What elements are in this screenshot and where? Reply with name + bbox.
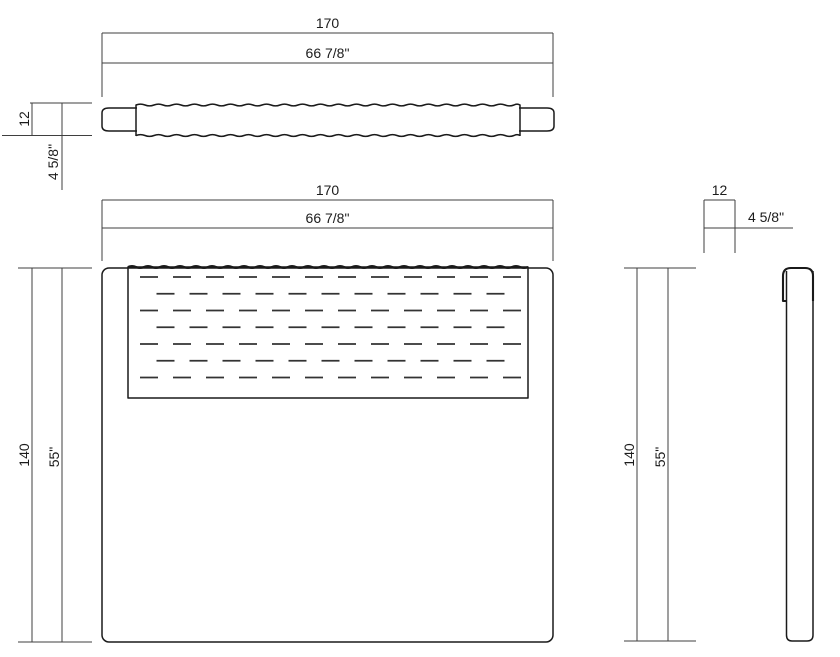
front-view: 170 66 7/8" 140 55" <box>16 182 553 642</box>
front-body-rect <box>102 268 553 642</box>
top-body-top-edge <box>136 104 520 106</box>
side-upholstery-cap <box>783 268 813 301</box>
front-width-cm-label: 170 <box>316 182 340 198</box>
headboard-drawing: 170 66 7/8" 12 4 5/8" 170 66 7/8" <box>0 0 840 657</box>
side-thickness-in-label: 4 5/8" <box>748 209 784 225</box>
top-left-leg-cap <box>102 108 137 131</box>
headboard-top-outline <box>102 104 554 136</box>
headboard-side-outline <box>783 268 813 641</box>
tuft-pattern <box>140 277 521 378</box>
top-view: 170 66 7/8" 12 4 5/8" <box>2 15 554 190</box>
side-board-profile <box>787 271 814 641</box>
side-height-in-label: 55" <box>652 447 668 468</box>
technical-drawing-canvas: 170 66 7/8" 12 4 5/8" 170 66 7/8" <box>0 0 840 657</box>
top-body-bottom-edge <box>136 135 520 137</box>
top-thickness-in-label: 4 5/8" <box>45 144 61 180</box>
top-width-in-label: 66 7/8" <box>306 45 350 61</box>
top-right-leg-cap <box>519 108 554 131</box>
side-view: 12 4 5/8" 140 55" <box>621 182 813 641</box>
front-height-in-label: 55" <box>46 447 62 468</box>
top-width-cm-label: 170 <box>316 15 340 31</box>
front-height-cm-label: 140 <box>16 443 32 467</box>
front-width-in-label: 66 7/8" <box>306 210 350 226</box>
headboard-front-outline <box>102 266 553 642</box>
side-height-cm-label: 140 <box>621 443 637 467</box>
top-thickness-cm-label: 12 <box>16 111 32 127</box>
side-thickness-cm-label: 12 <box>712 182 728 198</box>
